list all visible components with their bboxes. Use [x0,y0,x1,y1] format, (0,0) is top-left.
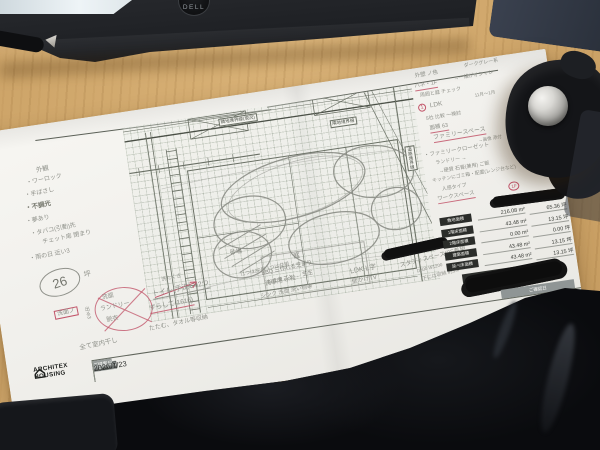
note: ダークグレー系 [463,57,498,69]
laundry-line: たたむ、タオル等収納 [149,314,209,333]
laundry-line: 全て室内干し [79,337,119,352]
sandbox-label: 砂場 [229,246,242,257]
note-item: ・夢あり [26,215,51,227]
dell-logo-text: DELL [183,4,205,11]
note-item: ・ワーロック [26,173,63,187]
area-26-tsubo-circle: 26 [36,263,84,302]
date-value: 2026/1/23 [93,356,128,375]
tsubo-value: 26 [51,273,69,292]
note: →一緒がオシャレ [453,69,493,82]
circled-number: 1 [418,103,427,112]
note: 11月〜1月 [474,89,495,98]
cluster-side-note: 出る3 [83,306,91,320]
note: 5社 比較 〜検討 [426,110,462,122]
laptop-screen-edge [0,0,132,14]
circled-1f-badge: 1F [508,181,521,192]
note-title: 外観 [35,165,49,175]
note-item: ・手ばさし [24,187,55,200]
note: LDK [429,100,443,110]
trackball-ball [528,86,568,126]
garden-label: 庭 [292,249,300,260]
company-name: ARCHITEX HOUSING [33,362,70,381]
tsubo-unit: 坪 [83,271,92,281]
red-boxed-note: 洗面ノ [54,306,79,320]
bag-on-lap [0,393,118,450]
note-item: ・雨の日 近い3 [29,248,71,263]
note: 外壁 ノ色 [414,70,438,80]
note-item: ・不調光 [25,200,52,213]
photo-scene: DELL [0,0,600,450]
note: 面積 63 [429,123,449,134]
